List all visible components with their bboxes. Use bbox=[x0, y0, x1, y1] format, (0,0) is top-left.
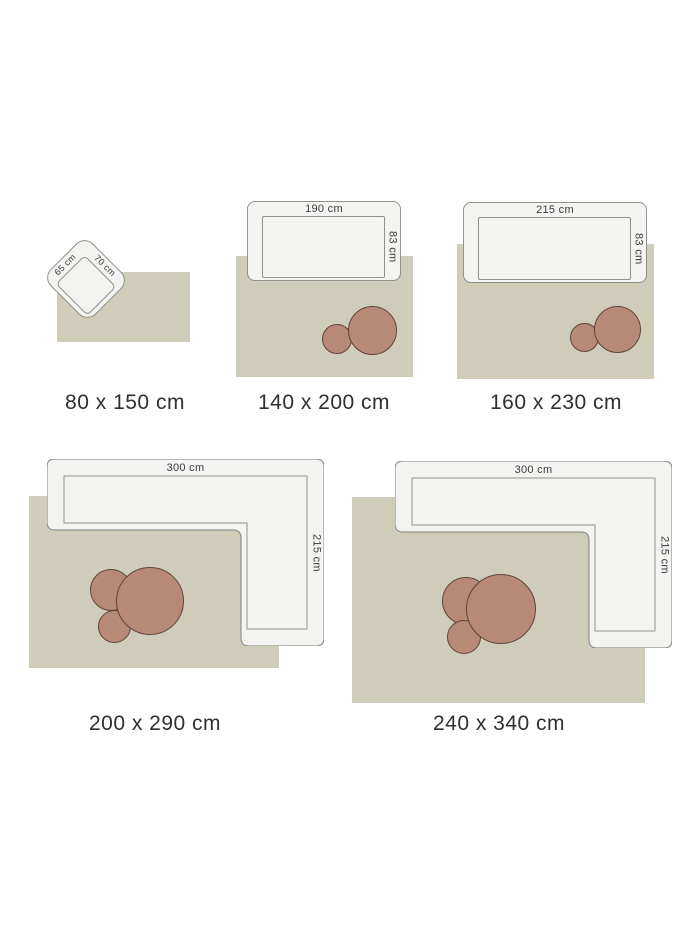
corner-sofa-depth-label: 215 cm bbox=[308, 525, 324, 580]
size-label-80x150: 80 x 150 cm bbox=[65, 391, 185, 415]
sofa-width-label: 215 cm bbox=[464, 204, 646, 217]
size-label-240x340: 240 x 340 cm bbox=[433, 712, 565, 736]
coffee-table-large bbox=[466, 574, 536, 644]
rug-size-guide: 65 cm 70 cm 80 x 150 cm 190 cm 83 cm 140… bbox=[0, 0, 700, 933]
size-label-160x230: 160 x 230 cm bbox=[490, 391, 622, 415]
coffee-table-large bbox=[348, 306, 397, 355]
sofa-depth-label: 83 cm bbox=[631, 219, 645, 278]
sofa-215: 215 cm 83 cm bbox=[463, 202, 647, 283]
size-label-140x200: 140 x 200 cm bbox=[258, 391, 390, 415]
coffee-table-large bbox=[116, 567, 184, 635]
sofa-seat bbox=[478, 217, 631, 280]
corner-sofa-outline bbox=[47, 459, 324, 646]
size-label-200x290: 200 x 290 cm bbox=[89, 712, 221, 736]
coffee-table-large bbox=[594, 306, 641, 353]
corner-sofa bbox=[47, 459, 324, 646]
corner-sofa-depth-label: 215 cm bbox=[656, 527, 672, 582]
sofa-seat bbox=[262, 216, 385, 278]
sofa-depth-label: 83 cm bbox=[385, 218, 399, 276]
sofa-190: 190 cm 83 cm bbox=[247, 201, 401, 281]
corner-sofa-width-label: 300 cm bbox=[395, 463, 672, 477]
corner-sofa-width-label: 300 cm bbox=[47, 461, 324, 475]
sofa-width-label: 190 cm bbox=[248, 203, 400, 216]
